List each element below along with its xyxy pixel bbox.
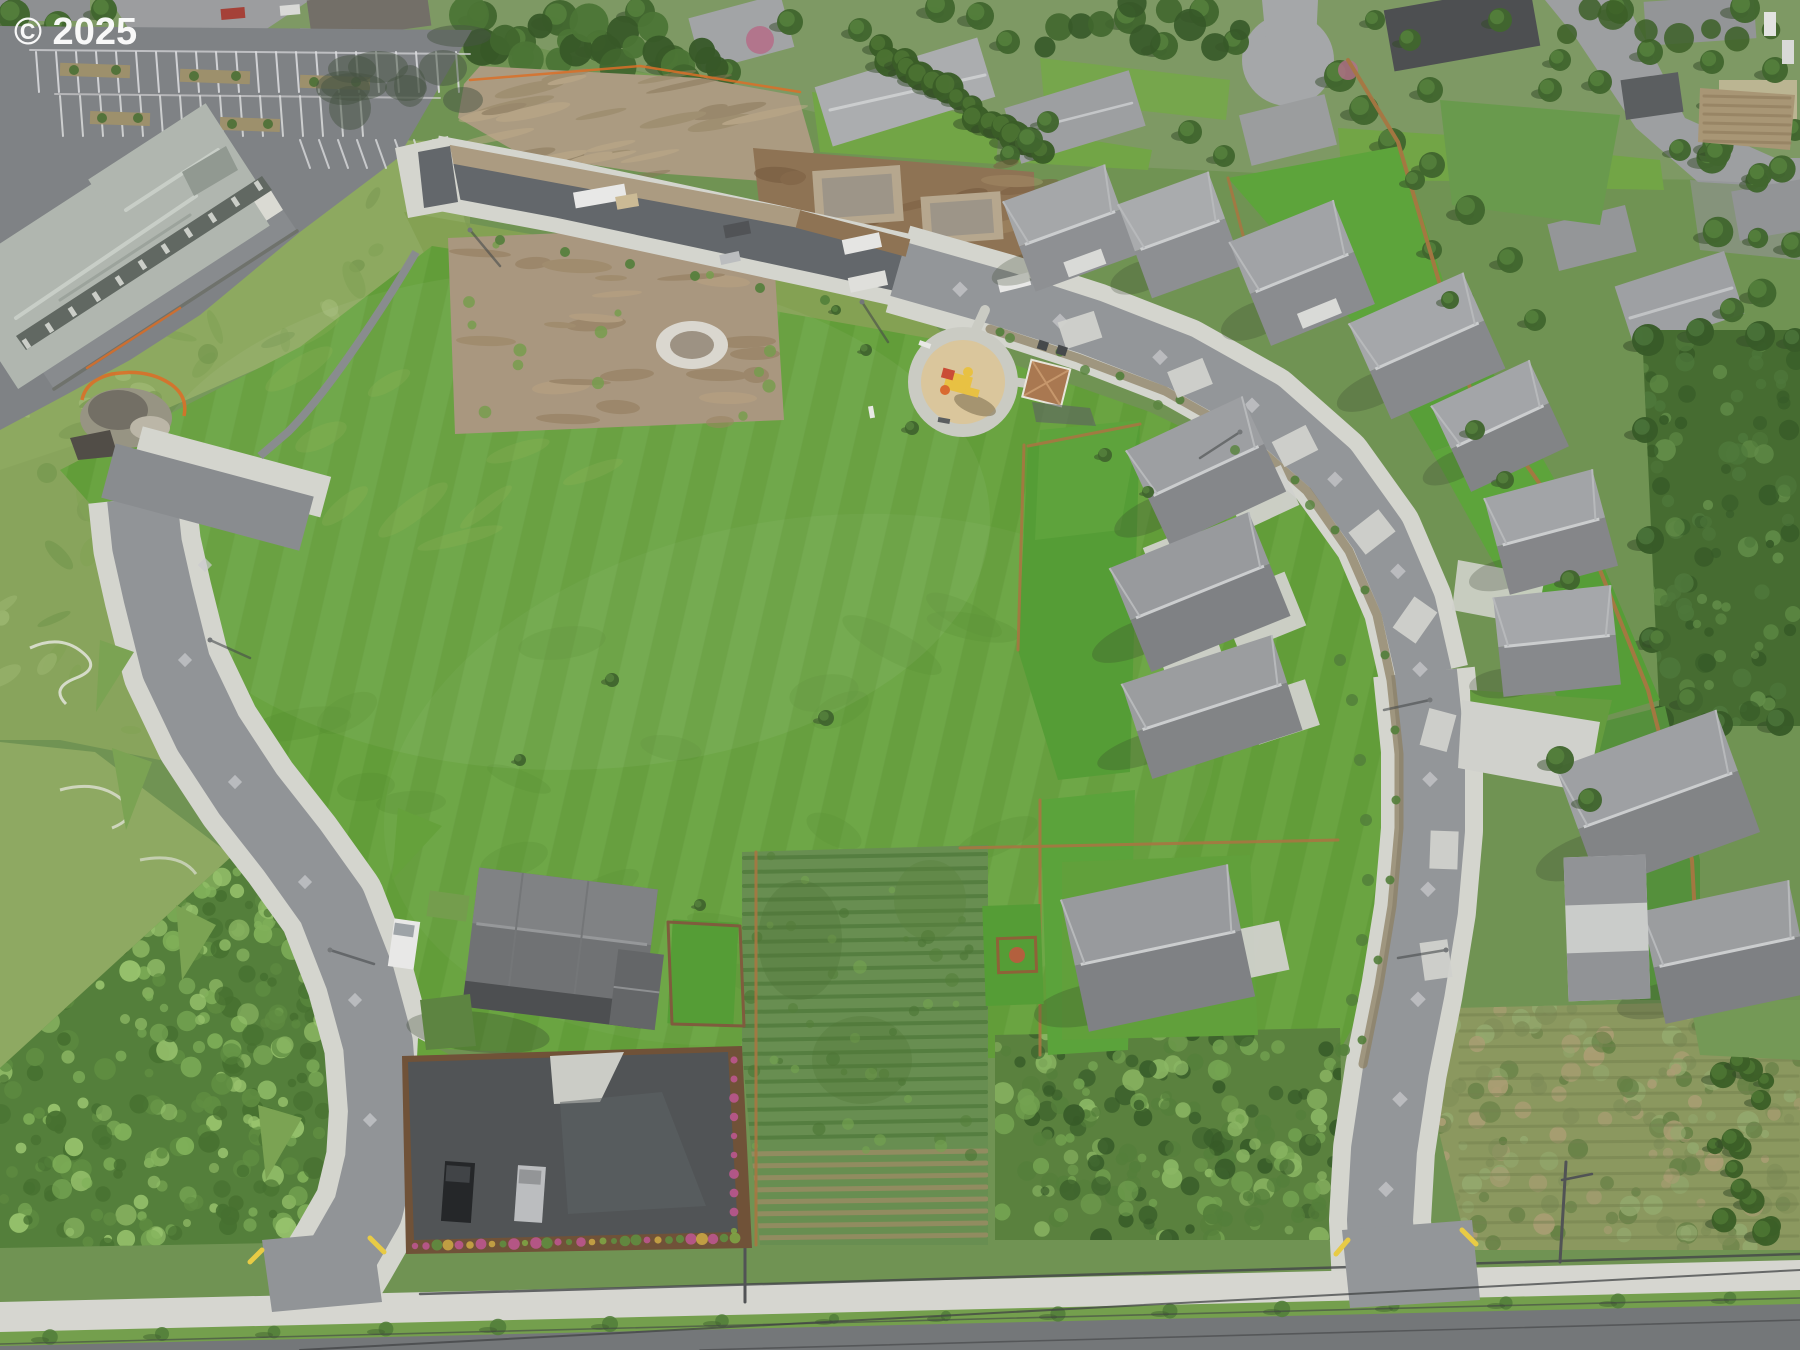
- svg-text:© 2025: © 2025: [14, 11, 137, 53]
